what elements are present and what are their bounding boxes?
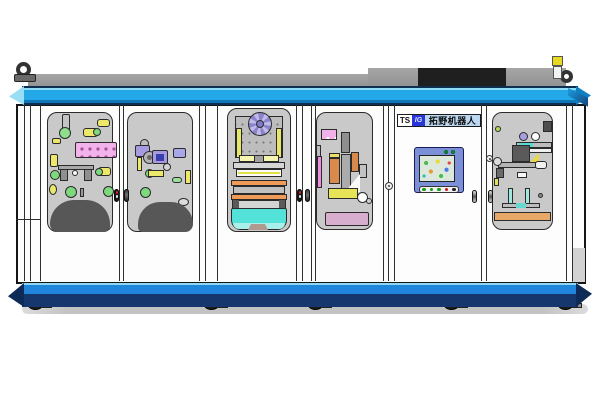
- indicator-green: [65, 186, 77, 198]
- base-cyan-seg: [516, 203, 526, 208]
- hmi-screen: [419, 155, 455, 182]
- sensor-yellow: [49, 184, 57, 195]
- hmi-indicator-dot: [444, 150, 448, 154]
- indicator-green: [50, 170, 60, 180]
- sensor-end-green: [95, 168, 103, 176]
- gray-band: [233, 186, 285, 194]
- door-handle: [472, 190, 477, 203]
- copper-cylinder: [351, 152, 359, 172]
- pink-plate: [321, 129, 337, 140]
- tray-corner: [233, 200, 239, 208]
- valve-fitting-cap: [552, 56, 563, 66]
- cylinder-base: [59, 127, 71, 139]
- valve-fitting-body: [553, 66, 562, 79]
- door-handle: [488, 190, 493, 203]
- fixture-post: [60, 169, 68, 181]
- frame-line: [302, 105, 303, 281]
- violet-module: [173, 148, 186, 158]
- bottom-beam-bevel-left: [8, 283, 24, 307]
- green-dot: [495, 126, 501, 132]
- horizontal-arm: [498, 162, 538, 168]
- gear-disc: [519, 132, 528, 141]
- frame-line: [572, 105, 573, 281]
- side-rail-yellow: [236, 128, 242, 158]
- fixture-post: [84, 169, 92, 181]
- frame-line: [486, 105, 487, 281]
- hmi-button: [422, 188, 426, 192]
- brand-name: 拓野机器人: [425, 115, 480, 126]
- white-block: [517, 172, 527, 178]
- bearing: [163, 163, 171, 171]
- side-rail-yellow: [276, 128, 282, 158]
- indicator-green: [140, 187, 151, 198]
- yellow-block-row: [328, 188, 358, 199]
- hmi-indicator-dot: [451, 150, 455, 154]
- panel-knob: [486, 155, 493, 162]
- panel-knob: [385, 182, 393, 190]
- door-handle: [124, 189, 129, 202]
- cover-dome: [138, 202, 193, 232]
- frame-line: [566, 105, 567, 281]
- cyan-post: [508, 188, 513, 204]
- sensor-yellow: [50, 154, 58, 167]
- brand-prefix: TS: [398, 115, 412, 126]
- frame-line: [205, 105, 206, 281]
- hmi-buttons: [419, 186, 459, 193]
- purple-block-core: [156, 154, 164, 161]
- fixture-hole: [72, 170, 78, 176]
- top-beam: [22, 86, 578, 105]
- sensor-yellow: [185, 170, 191, 184]
- hmi-button: [445, 188, 449, 192]
- frame-line: [199, 105, 200, 281]
- cover-dome: [50, 200, 110, 232]
- hmi-button: [452, 188, 456, 192]
- index-wheel-hub: [256, 120, 264, 128]
- pink-strip: [317, 156, 322, 188]
- right-side-lower-panel: [572, 248, 585, 282]
- sensor-yellow: [52, 138, 61, 144]
- frame-line: [394, 105, 395, 281]
- frame-line: [40, 105, 41, 281]
- clamp-yellow: [494, 178, 499, 186]
- frame-line: [217, 105, 218, 281]
- indicator-green: [103, 186, 114, 197]
- door-handle: [297, 189, 302, 202]
- vertical-post: [341, 132, 350, 153]
- frame-line: [383, 105, 384, 281]
- hmi-indicators: [444, 150, 455, 154]
- clamp-disc: [493, 157, 502, 166]
- copper-cylinder: [329, 158, 340, 184]
- valve-manifold: [75, 142, 117, 158]
- clamp-body: [496, 168, 504, 178]
- sensor-yellow: [97, 119, 110, 127]
- sensor-yellow: [137, 157, 142, 171]
- hmi-button: [437, 188, 441, 192]
- tray-corner: [279, 200, 285, 208]
- side-panel-seam: [16, 219, 40, 220]
- pin: [80, 188, 84, 197]
- frame-line: [311, 105, 312, 281]
- arm-cylinder: [535, 161, 547, 169]
- dark-module: [512, 145, 530, 162]
- brand-plate: TS IG 拓野机器人: [397, 114, 481, 127]
- sensor-end-green: [93, 128, 101, 136]
- top-beam-bevel-left: [9, 86, 24, 105]
- bottom-beam: [22, 283, 578, 307]
- gray-assembly: [341, 154, 351, 190]
- door-handle: [114, 189, 119, 202]
- frame-line: [481, 105, 482, 281]
- stage: TS IG 拓野机器人: [0, 0, 600, 400]
- brand-logo-icon: IG: [412, 115, 425, 126]
- frame-line: [119, 105, 120, 281]
- frame-line: [30, 105, 31, 281]
- tan-base-bar: [494, 212, 551, 221]
- cross-bar: [233, 162, 285, 169]
- mauve-base: [325, 212, 369, 226]
- small-disc: [366, 198, 372, 204]
- outfeed-shadow: [248, 224, 268, 230]
- frame-line: [24, 105, 25, 281]
- green-capsule: [172, 177, 182, 183]
- cyan-post: [525, 188, 530, 204]
- eyebolt-left-mount: [14, 74, 36, 82]
- sensor-yellow: [148, 170, 164, 177]
- ring-disc: [531, 132, 540, 141]
- hmi-button: [430, 188, 434, 192]
- gray-dot: [538, 193, 543, 198]
- gray-block: [359, 164, 367, 178]
- dark-block: [543, 121, 552, 132]
- roller-line: [238, 172, 280, 174]
- door-handle: [305, 189, 310, 202]
- frame-line: [388, 105, 389, 281]
